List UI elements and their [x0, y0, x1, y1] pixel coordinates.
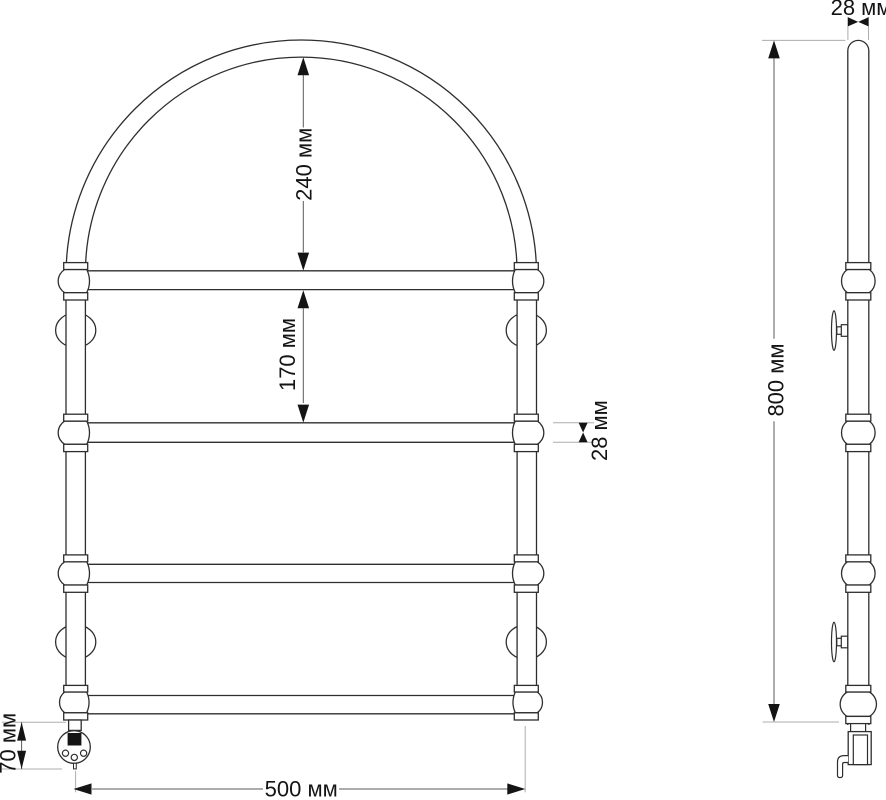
svg-text:28 мм: 28 мм	[831, 0, 886, 20]
svg-text:170 мм: 170 мм	[275, 318, 300, 391]
svg-text:800 мм: 800 мм	[763, 343, 788, 416]
svg-text:240 мм: 240 мм	[292, 128, 317, 201]
svg-text:28 мм: 28 мм	[587, 400, 612, 461]
svg-text:70 мм: 70 мм	[0, 713, 21, 774]
svg-text:500 мм: 500 мм	[265, 777, 338, 800]
